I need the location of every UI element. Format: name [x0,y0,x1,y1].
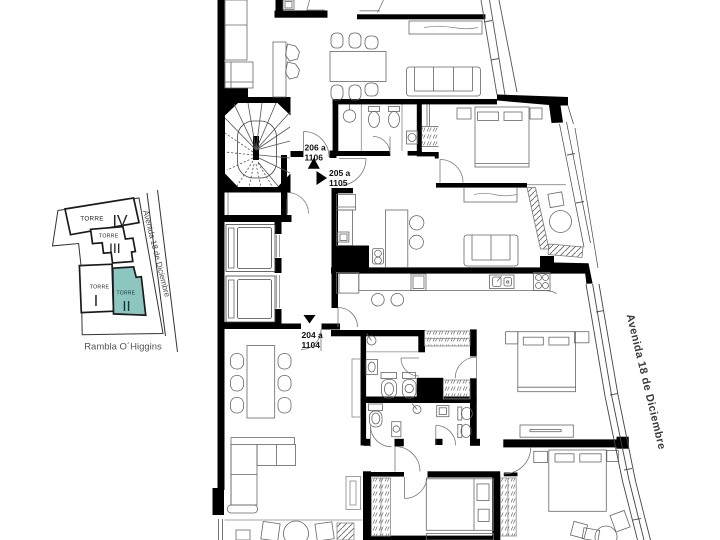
svg-text:TORRE: TORRE [117,291,136,297]
svg-text:IV: IV [112,213,127,230]
svg-text:Rambla O´Higgins: Rambla O´Higgins [84,342,162,353]
svg-text:II: II [122,298,130,315]
svg-text:206 a: 206 a [305,143,327,153]
svg-text:1104: 1104 [302,340,321,350]
svg-text:1105: 1105 [329,178,348,188]
svg-text:TORRE: TORRE [90,285,110,291]
svg-text:TORRE: TORRE [80,216,103,223]
svg-text:204 a: 204 a [302,330,324,340]
svg-text:205 a: 205 a [329,168,351,178]
svg-text:I: I [94,293,98,310]
svg-text:TORRE: TORRE [99,234,119,240]
svg-text:III: III [109,240,121,256]
